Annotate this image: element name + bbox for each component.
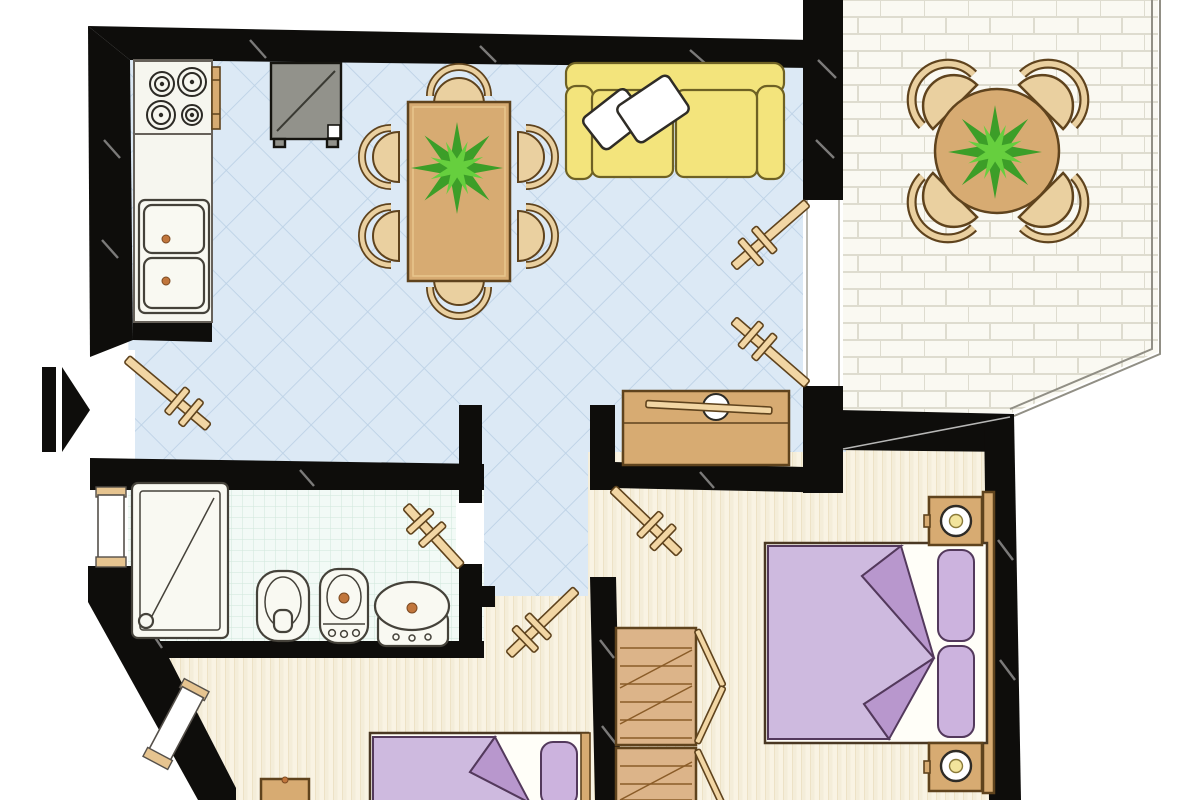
appliance-foot — [327, 139, 338, 147]
appliance-foot — [274, 139, 285, 147]
bathroom-door-threshold — [456, 500, 484, 567]
nightstand — [924, 497, 982, 545]
bed-pillow — [541, 742, 577, 800]
nightstand-lamp — [941, 506, 971, 536]
burner-dot — [190, 113, 194, 117]
sofa-seat-cushion — [676, 90, 757, 177]
bidet — [320, 569, 368, 643]
sofa-armrest — [566, 86, 593, 179]
wall-hall-bottom-piece — [480, 586, 495, 607]
basin-tap — [407, 603, 417, 613]
appliance-notch — [328, 125, 340, 138]
nightstand — [924, 743, 982, 791]
wall-divider-upper-stub — [590, 405, 615, 490]
toilet-seat — [274, 610, 292, 632]
nightstand-lamp — [941, 751, 971, 781]
balcony-door-threshold — [803, 196, 843, 389]
sideboard — [623, 391, 789, 465]
burner-dot — [159, 113, 163, 117]
double-sink — [139, 200, 209, 313]
drain — [162, 235, 170, 243]
entry-threshold — [88, 350, 135, 462]
drain — [162, 277, 170, 285]
nightstand-knob — [282, 777, 288, 783]
stove — [134, 61, 220, 134]
sofa-armrest — [757, 86, 784, 179]
burner-dot — [190, 80, 194, 84]
sofa — [566, 63, 784, 179]
entry-arrow-icon — [42, 367, 90, 452]
wall-balcony-left — [803, 0, 843, 200]
burner-dot — [160, 82, 164, 86]
bed-pillow — [938, 646, 974, 737]
floor-plan-canvas — [0, 0, 1200, 800]
headboard — [581, 733, 590, 800]
bed-pillow — [938, 550, 974, 641]
balcony-plant — [948, 105, 1042, 199]
wall-left-upper — [88, 26, 133, 357]
toilet — [257, 571, 309, 641]
washbasin — [375, 582, 449, 646]
nightstand — [261, 777, 309, 800]
wardrobe — [616, 628, 726, 800]
kitchen-appliance — [271, 63, 341, 147]
wall-below-balcony-door — [803, 386, 843, 493]
table-plant — [411, 122, 503, 214]
shower — [132, 483, 228, 638]
floor-plan-stage — [0, 0, 1200, 800]
bidet-tap — [339, 593, 349, 603]
bathroom-window — [96, 487, 126, 567]
shower-drain — [139, 614, 153, 628]
wall-hall-left-stub — [459, 405, 482, 503]
oven-handle — [212, 67, 220, 129]
